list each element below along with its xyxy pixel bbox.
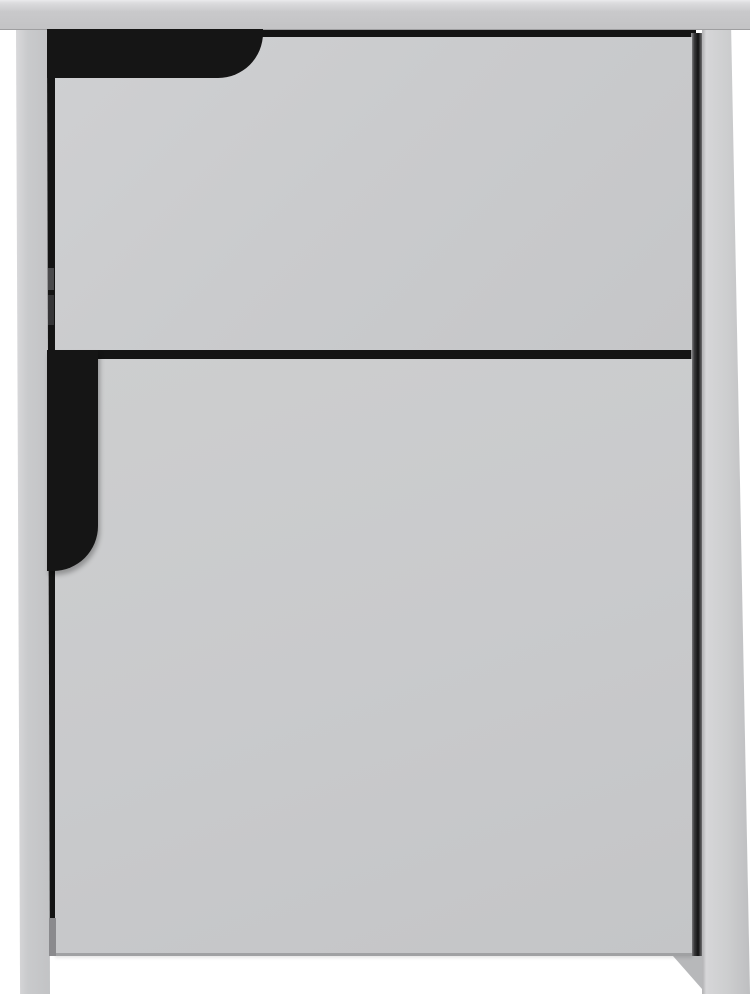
right-gap-shadow — [691, 33, 702, 956]
drawer-handle-recess — [47, 29, 263, 78]
drawer-front — [55, 37, 692, 350]
door-front — [55, 359, 692, 956]
left-side-panel — [16, 29, 50, 994]
hinge-mark-lower — [48, 295, 54, 325]
cabinet-tabletop — [0, 0, 750, 30]
cabinet-product-photo — [0, 0, 750, 997]
left-gap-floor-light — [49, 918, 56, 956]
door-handle-recess — [47, 350, 98, 571]
right-side-panel — [699, 29, 750, 994]
door-bottom-edge-shadow — [55, 953, 692, 956]
hinge-mark-upper — [48, 268, 54, 290]
drawer-door-gap-shadow — [47, 350, 696, 359]
right-leg-inner-face — [673, 956, 702, 989]
